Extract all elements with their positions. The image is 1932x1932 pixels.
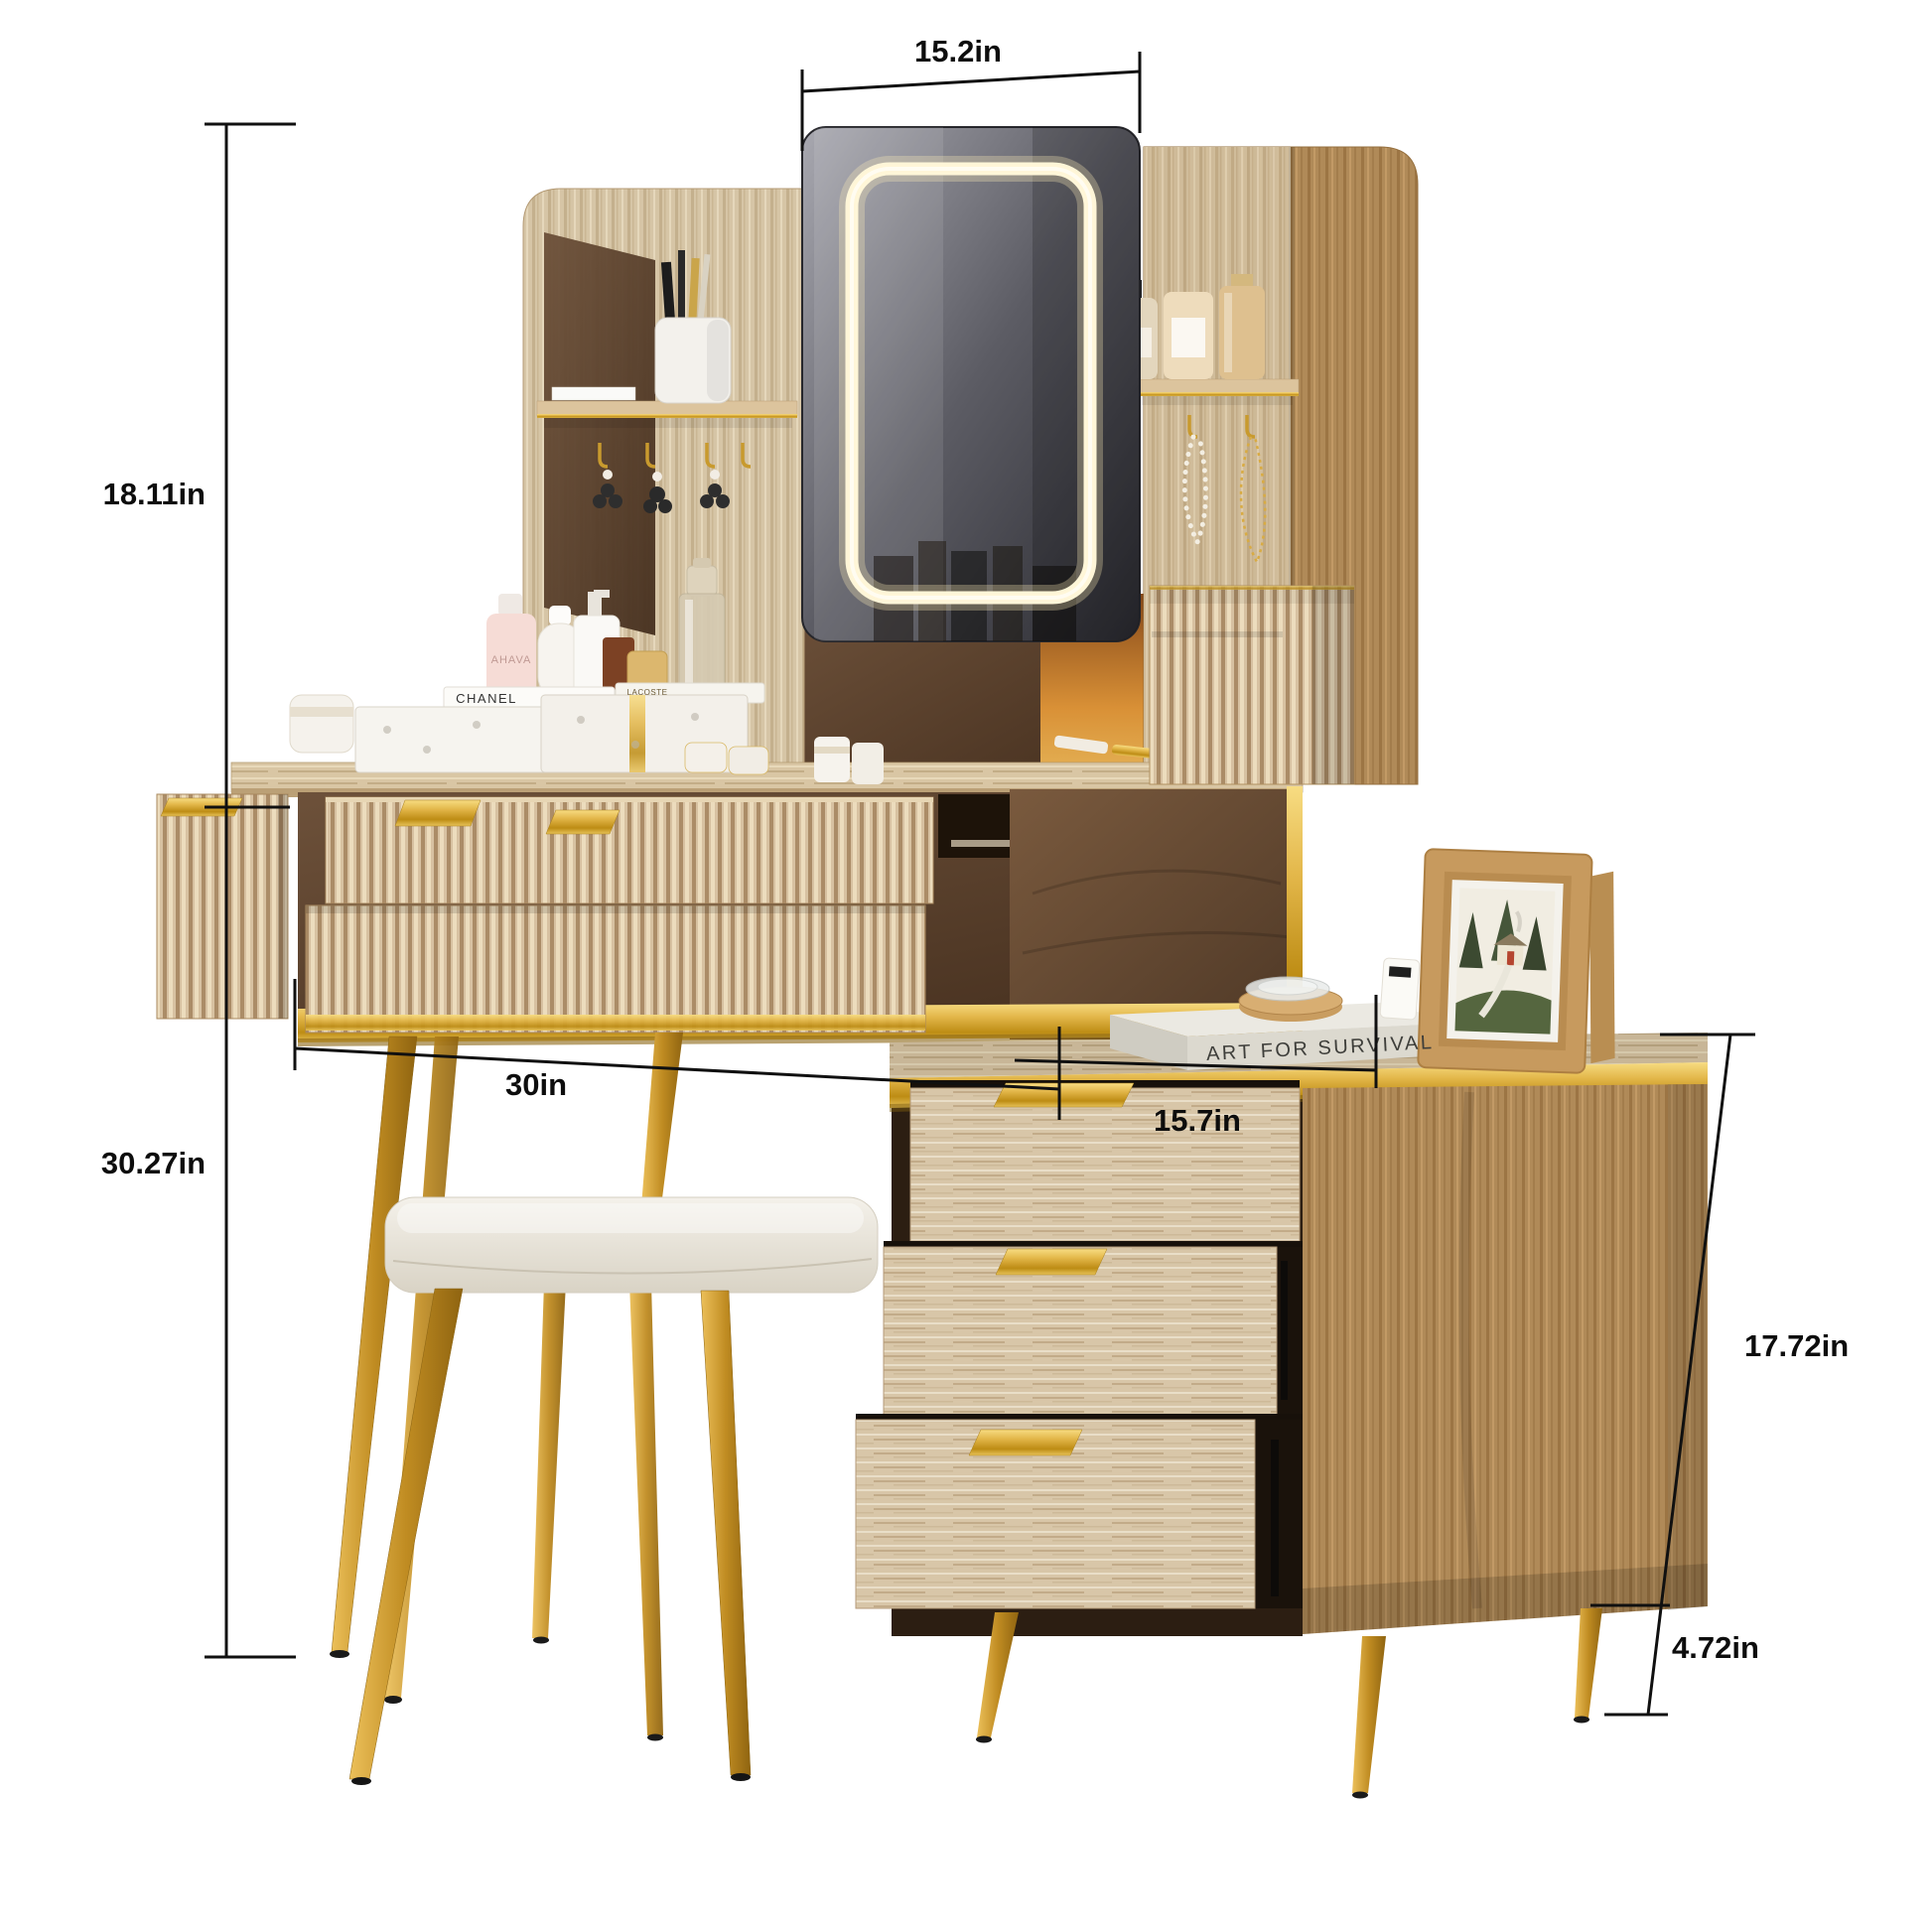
- stool-leg-back-left: [532, 1283, 566, 1638]
- cabinet-drawer-3[interactable]: [856, 1420, 1303, 1608]
- gift-box-chanel: [355, 707, 554, 772]
- dimension-leg-height-label: 4.72in: [1672, 1630, 1759, 1665]
- white-remote: [1380, 958, 1420, 1020]
- cabinet-drawer-1[interactable]: [910, 1080, 1300, 1241]
- cream-jar: [290, 695, 353, 753]
- cabinet-drawer-2[interactable]: [884, 1247, 1303, 1416]
- dimension-hutch-height-label: 18.11in: [103, 477, 206, 511]
- dimension-table-width-label: 30in: [505, 1067, 567, 1102]
- stool-leg-back-right: [629, 1283, 663, 1735]
- dimension-cabinet-height-label: 17.72in: [1744, 1328, 1849, 1363]
- side-cabinet: [856, 1033, 1708, 1799]
- photo-frame: [1418, 849, 1622, 1074]
- product-dimension-image: CHANEL AHAVA LACOSTE ART FOR SURVIVAL 15…: [0, 0, 1932, 1932]
- perfume-brand-text: LACOSTE: [627, 688, 668, 697]
- drawer-handle[interactable]: [395, 800, 481, 826]
- stool: [349, 1197, 878, 1785]
- dimension-table-height-label: 30.27in: [101, 1146, 206, 1180]
- drawer-middle-bottom[interactable]: [306, 905, 925, 1033]
- lotion-brand-text: AHAVA: [491, 654, 532, 666]
- desk-leg-center: [641, 1033, 683, 1206]
- left-shelf: [537, 401, 797, 428]
- stool-leg-front-right: [701, 1291, 751, 1775]
- drawer-left-open[interactable]: [157, 794, 288, 1019]
- paper-on-shelf: [552, 387, 635, 400]
- dimension-mirror-width-label: 15.2in: [914, 34, 1002, 69]
- glass-tray: [1239, 977, 1342, 1022]
- desk-organizer: [1150, 586, 1354, 784]
- dimension-cabinet-depth-label: 15.7in: [1154, 1103, 1241, 1138]
- vanity-mirror: [802, 127, 1140, 641]
- drawer-middle-top[interactable]: [326, 797, 933, 903]
- drawer-handle[interactable]: [969, 1430, 1082, 1455]
- gift-box-brand-text: CHANEL: [456, 691, 517, 706]
- cabinet-side-panel: [1303, 1084, 1708, 1634]
- cabinet-legs: [976, 1608, 1602, 1799]
- drawer-handle[interactable]: [996, 1249, 1107, 1275]
- drawer-handle[interactable]: [546, 810, 620, 834]
- vanity-scene: CHANEL AHAVA LACOSTE ART FOR SURVIVAL 15…: [0, 0, 1932, 1932]
